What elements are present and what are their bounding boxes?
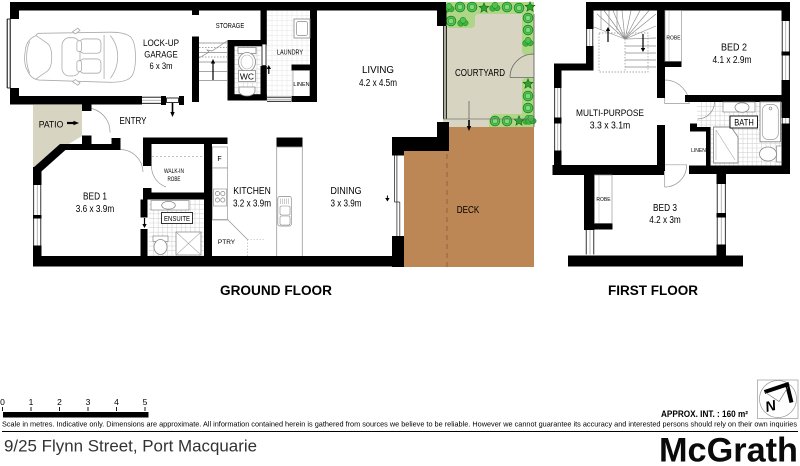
svg-text:3: 3: [86, 397, 91, 407]
svg-text:4.1 x 2.9m: 4.1 x 2.9m: [713, 55, 752, 66]
svg-text:GARAGE: GARAGE: [144, 50, 178, 60]
svg-text:FIRST FLOOR: FIRST FLOOR: [608, 283, 698, 298]
svg-text:ROBE: ROBE: [666, 36, 681, 42]
svg-text:F: F: [217, 156, 221, 163]
svg-text:WC: WC: [240, 72, 254, 82]
svg-text:9/25 Flynn Street, Port Macqua: 9/25 Flynn Street, Port Macquarie: [4, 438, 257, 456]
svg-text:2: 2: [57, 397, 62, 407]
svg-text:4.2 x 4.5m: 4.2 x 4.5m: [359, 78, 397, 89]
svg-text:4: 4: [114, 397, 119, 407]
svg-text:PATIO: PATIO: [39, 120, 64, 130]
svg-text:LINEN: LINEN: [691, 148, 706, 154]
svg-text:3 x 3.9m: 3 x 3.9m: [331, 199, 362, 210]
svg-text:3.2 x 3.9m: 3.2 x 3.9m: [233, 199, 271, 210]
svg-text:6 x 3m: 6 x 3m: [150, 61, 173, 71]
svg-text:BED 2: BED 2: [721, 43, 747, 54]
svg-text:Scale in metres. Indicative on: Scale in metres. Indicative only. Dimens…: [2, 420, 797, 429]
svg-text:DECK: DECK: [457, 205, 480, 216]
svg-text:3.6 x 3.9m: 3.6 x 3.9m: [76, 204, 115, 215]
svg-text:ROBE: ROBE: [168, 177, 181, 183]
svg-text:STORAGE: STORAGE: [216, 21, 245, 30]
svg-text:ROBE: ROBE: [596, 197, 611, 203]
svg-text:DINING: DINING: [331, 186, 362, 197]
svg-text:LINEN: LINEN: [293, 82, 309, 88]
svg-text:BATH: BATH: [734, 118, 754, 128]
svg-text:PTRY: PTRY: [218, 239, 236, 246]
svg-text:ENSUITE: ENSUITE: [164, 214, 190, 223]
svg-text:1: 1: [29, 397, 34, 407]
svg-text:COURTYARD: COURTYARD: [455, 68, 505, 79]
svg-text:0: 0: [0, 397, 5, 407]
svg-text:4.2 x 3m: 4.2 x 3m: [649, 215, 681, 226]
svg-text:LIVING: LIVING: [362, 65, 394, 76]
svg-text:BED 3: BED 3: [653, 203, 677, 214]
svg-text:5: 5: [143, 397, 148, 407]
svg-text:3.3 x 3.1m: 3.3 x 3.1m: [590, 121, 631, 132]
svg-text:LOCK-UP: LOCK-UP: [143, 38, 179, 48]
svg-text:ENTRY: ENTRY: [120, 116, 147, 127]
svg-text:APPROX. INT. : 160 m²: APPROX. INT. : 160 m²: [661, 409, 748, 419]
svg-text:GROUND FLOOR: GROUND FLOOR: [220, 283, 332, 298]
svg-text:LAUNDRY: LAUNDRY: [277, 50, 303, 57]
svg-text:MULTI-PURPOSE: MULTI-PURPOSE: [576, 108, 644, 119]
svg-text:WALK-IN: WALK-IN: [164, 169, 184, 175]
svg-text:KITCHEN: KITCHEN: [233, 186, 271, 197]
svg-text:BED 1: BED 1: [83, 192, 107, 203]
svg-text:McGrath: McGrath: [659, 432, 798, 466]
